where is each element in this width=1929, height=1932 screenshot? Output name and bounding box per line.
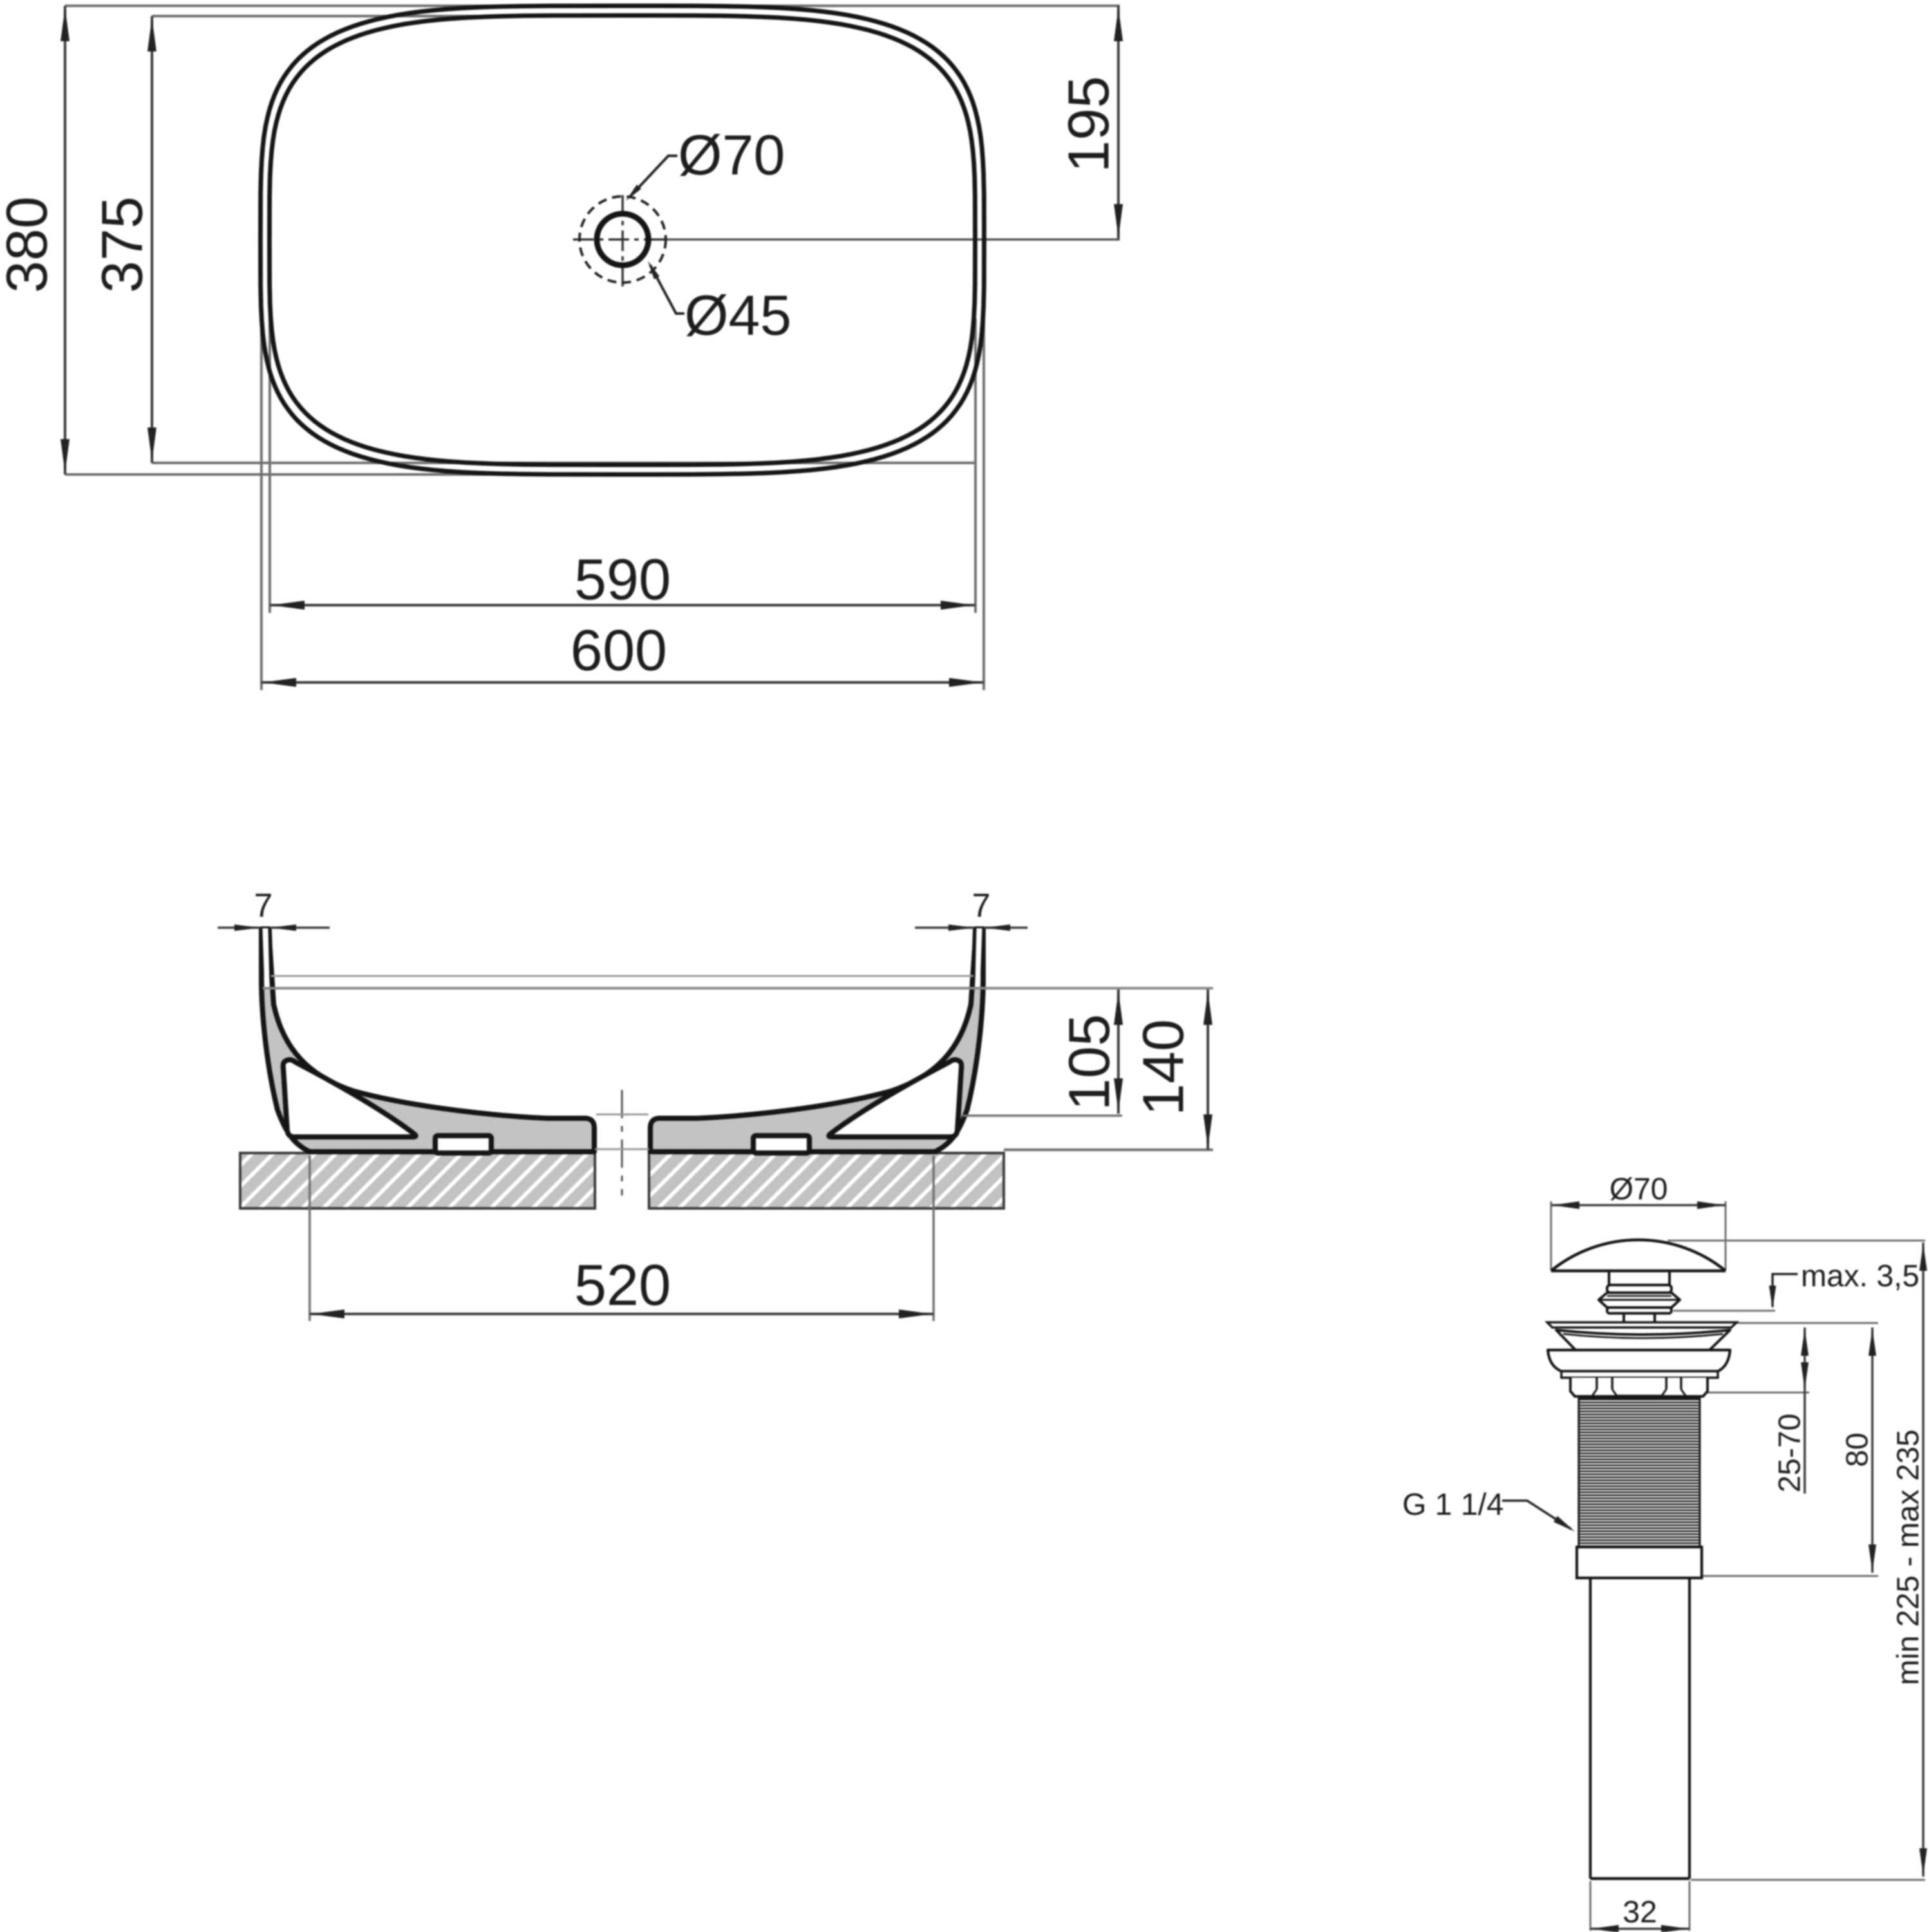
svg-text:Ø45: Ø45	[684, 283, 791, 347]
svg-text:590: 590	[574, 548, 671, 612]
svg-text:105: 105	[1057, 1014, 1122, 1111]
svg-text:G 1 1/4: G 1 1/4	[1402, 1488, 1503, 1522]
svg-text:Ø70: Ø70	[678, 123, 785, 187]
svg-text:600: 600	[570, 619, 667, 683]
svg-text:7: 7	[972, 887, 991, 924]
svg-text:32: 32	[1623, 1895, 1657, 1929]
svg-text:375: 375	[90, 196, 155, 293]
svg-text:80: 80	[1840, 1432, 1874, 1467]
svg-text:25-70: 25-70	[1773, 1414, 1807, 1493]
svg-text:min 225 - max 235: min 225 - max 235	[1891, 1429, 1925, 1685]
svg-text:max. 3,5: max. 3,5	[1801, 1259, 1919, 1293]
svg-text:195: 195	[1057, 76, 1121, 173]
svg-text:140: 140	[1131, 1019, 1196, 1116]
svg-text:7: 7	[254, 887, 273, 924]
svg-text:Ø70: Ø70	[1610, 1172, 1668, 1206]
svg-text:520: 520	[574, 1253, 671, 1318]
svg-text:380: 380	[0, 196, 59, 293]
